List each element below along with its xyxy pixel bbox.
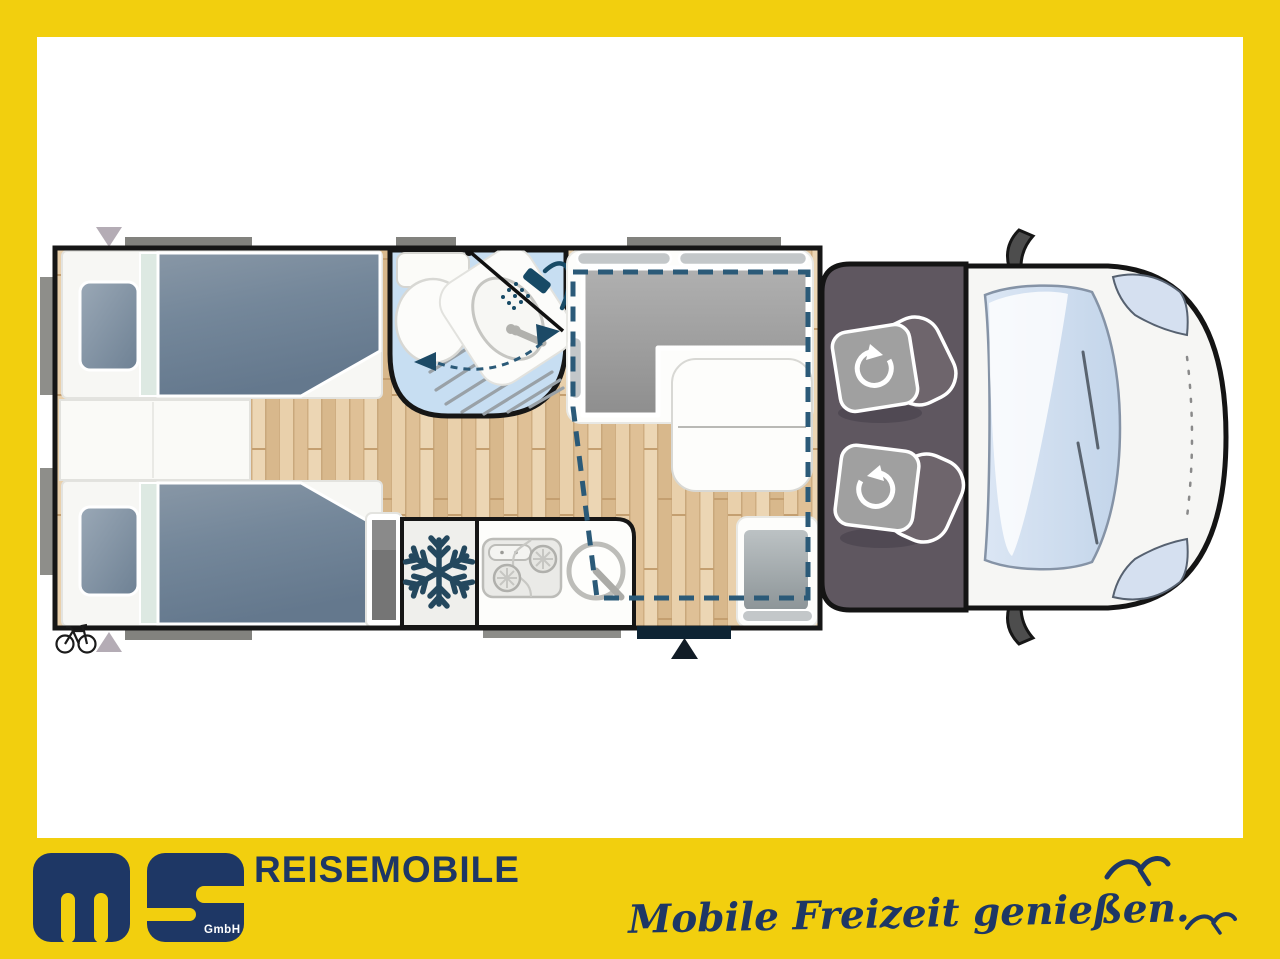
marker-triangle-bottom [96,632,122,652]
entry-door [637,626,731,639]
bathroom [390,238,582,416]
promo-image: REISEMOBILE GmbH Mobile Freizeit genieße… [0,0,1280,959]
seagull-icon [1107,859,1168,877]
logo-m [33,853,130,943]
pillow [80,507,138,595]
bed-bottom [62,481,382,626]
gmbh-label: GmbH [204,924,241,936]
cab-floor [822,264,966,610]
seagull-icon [1187,914,1235,928]
floorplan-graphic [0,0,1280,959]
hob-icon [483,539,561,597]
dinette-table [672,359,812,491]
entry-arrow-icon [671,638,698,659]
rear-bumper-left-top [40,277,53,395]
brand-name: REISEMOBILE [254,851,520,888]
marker-triangle-top [96,227,122,247]
mirror-bottom [1007,607,1033,644]
bed-top [62,251,382,398]
mirror-top [1007,230,1033,267]
rear-bumper-left-bottom [40,468,53,575]
pillow [80,282,138,370]
nightstand [60,400,250,480]
cab-area [822,230,1226,644]
